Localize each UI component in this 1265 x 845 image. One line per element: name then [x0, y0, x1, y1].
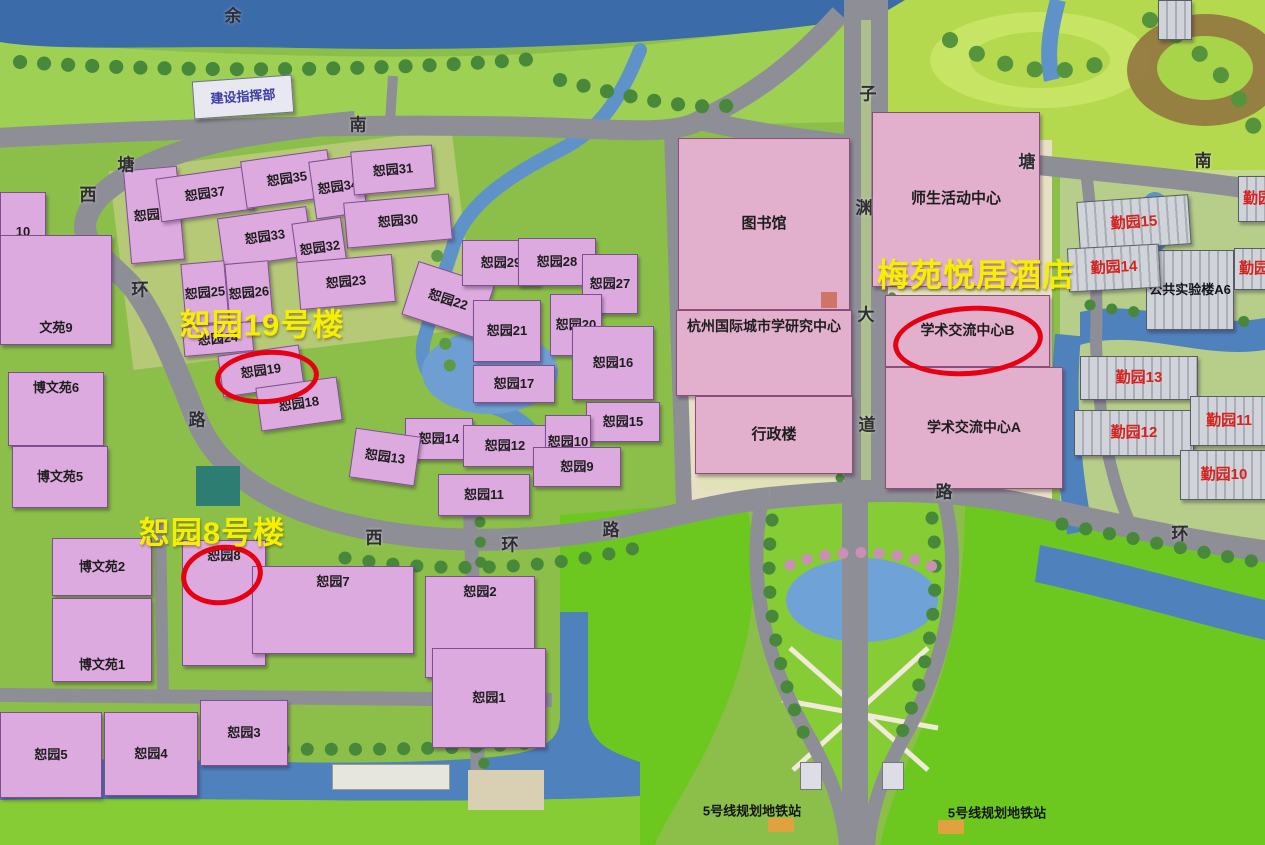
building-label: 恕园4	[134, 747, 167, 762]
river-label-yu: 余	[225, 2, 242, 27]
building-label: 恕园5	[34, 748, 67, 763]
building-label: 博文苑6	[33, 381, 79, 396]
building-label: 恕园35	[266, 169, 308, 189]
building-bowenyuan-9: 文苑9	[0, 235, 112, 345]
building-label: 恕园17	[494, 377, 534, 392]
campus-master-plan-map: 建设指挥部恕园36恕园37恕园35恕园34恕园31恕园30恕园33恕园32恕园2…	[0, 0, 1265, 845]
building-label: 恕园9	[560, 460, 593, 475]
building-academic-exchange-center-a: 学术交流中心A	[885, 367, 1063, 489]
building-label: 勤园12	[1111, 425, 1158, 442]
building-qinyuan-partial-upper: 勤园	[1238, 176, 1265, 222]
building-qinyuan-10: 勤园10	[1180, 450, 1265, 500]
building-shuyuan-4: 恕园4	[104, 712, 198, 796]
highlight-shuyuan-19-building: 恕园19号楼	[180, 300, 344, 345]
metro-marker-right	[938, 820, 964, 834]
building-bowenyuan-2: 博文苑2	[52, 538, 152, 596]
road-label-lu-southeast: 路	[936, 478, 953, 503]
building-label: 恕园12	[485, 439, 525, 454]
building-shuyuan-5: 恕园5	[0, 712, 102, 798]
building-label: 恕园22	[427, 287, 470, 313]
gate-stalls	[332, 764, 450, 790]
road-label-tang-west: 塘	[118, 151, 135, 176]
building-label: 恕园37	[184, 184, 226, 204]
road-label-xi-south: 西	[366, 524, 383, 549]
building-qinyuan-partial-lower: 勤园	[1234, 248, 1265, 290]
building-label: 恕园11	[464, 488, 504, 503]
building-label: 勤园15	[1110, 213, 1158, 233]
road-label-huan-nw: 环	[132, 276, 149, 301]
road-label-da: 大	[858, 301, 875, 326]
building-label: 勤园	[1239, 261, 1265, 278]
building-label: 恕园30	[377, 212, 419, 230]
building-shuyuan-7: 恕园7	[252, 566, 414, 654]
building-shuyuan-15: 恕园15	[586, 402, 660, 442]
bridge-southwest	[468, 770, 544, 810]
gate-booth-left	[800, 762, 822, 790]
building-label: 恕园1	[472, 691, 505, 706]
road-label-tang-east: 塘	[1019, 148, 1036, 173]
building-label: 恕园7	[316, 575, 349, 590]
road-label-nan-east: 南	[1195, 147, 1212, 172]
building-label: 恕园31	[372, 161, 414, 179]
building-label: 勤园	[1243, 191, 1265, 208]
road-label-dao: 道	[859, 411, 876, 436]
building-label: 恕园14	[419, 432, 459, 447]
building-qinyuan-15: 勤园15	[1076, 194, 1191, 252]
sports-court	[196, 466, 240, 506]
metro-station-label-right: 5号线规划地铁站	[948, 803, 1046, 822]
highlight-shuyuan-8-building: 恕园8号楼	[139, 508, 285, 553]
building-label: 勤园10	[1201, 467, 1248, 484]
building-label: 恕园32	[299, 238, 341, 258]
building-label: 文苑9	[39, 321, 72, 336]
building-label: 恕园15	[603, 415, 643, 430]
building-qinyuan-12: 勤园12	[1074, 410, 1194, 456]
building-label: 恕园21	[487, 324, 527, 339]
building-label: 恕园16	[593, 356, 633, 371]
road-label-nan-west: 南	[350, 111, 367, 136]
building-jianshe-zhihuibu: 建设指挥部	[192, 75, 294, 120]
building-small-building-topright	[1158, 0, 1192, 40]
axis-sculpture	[821, 292, 837, 308]
road-label-lu-south: 路	[603, 516, 620, 541]
road-label-xi-nw: 西	[80, 181, 97, 206]
building-shuyuan-11: 恕园11	[438, 474, 530, 516]
building-label: 学术交流中心A	[927, 420, 1021, 436]
road-label-huan-south: 环	[502, 531, 519, 556]
road-label-lu-nw: 路	[189, 406, 206, 431]
building-admin-building: 行政楼	[695, 396, 853, 474]
road-label-yuan: 渊	[856, 194, 873, 219]
metro-station-label-left: 5号线规划地铁站	[703, 801, 801, 820]
building-shuyuan-17: 恕园17	[473, 365, 555, 403]
road-label-huan-east: 环	[1172, 520, 1189, 545]
building-bowenyuan-6: 博文苑6	[8, 372, 104, 446]
building-shuyuan-3: 恕园3	[200, 700, 288, 766]
building-label: 博文苑1	[79, 658, 125, 673]
building-label: 勤园13	[1116, 370, 1163, 387]
highlight-meiyuan-yueju-hotel: 梅苑悦居酒店	[877, 250, 1075, 296]
road-label-zi: 子	[860, 80, 877, 105]
building-label: 博文苑5	[37, 470, 83, 485]
building-label: 恕园23	[325, 273, 367, 291]
building-shuyuan-21: 恕园21	[473, 300, 541, 362]
building-shuyuan-16: 恕园16	[572, 326, 654, 400]
building-label: 恕园28	[537, 255, 577, 270]
building-qinyuan-14: 勤园14	[1067, 244, 1161, 293]
building-bowenyuan-5: 博文苑5	[12, 446, 108, 508]
building-shuyuan-31: 恕园31	[350, 145, 436, 196]
building-qinyuan-11: 勤园11	[1190, 396, 1265, 446]
building-library: 图书馆	[678, 138, 850, 310]
building-label: 恕园27	[590, 277, 630, 292]
building-bowenyuan-1: 博文苑1	[52, 598, 152, 682]
building-label: 博文苑2	[79, 560, 125, 575]
building-shuyuan-1: 恕园1	[432, 648, 546, 748]
map-entities: 建设指挥部恕园36恕园37恕园35恕园34恕园31恕园30恕园33恕园32恕园2…	[0, 0, 1265, 845]
building-label: 师生活动中心	[911, 191, 1001, 208]
building-label: 恕园29	[481, 256, 521, 271]
building-label: 行政楼	[751, 427, 796, 444]
building-qinyuan-13: 勤园13	[1080, 356, 1198, 400]
metro-marker-left	[768, 818, 794, 832]
building-shuyuan-30: 恕园30	[343, 193, 453, 248]
building-hangzhou-urban-studies-center: 杭州国际城市学研究中心	[676, 310, 852, 396]
building-label: 勤园14	[1090, 258, 1138, 277]
building-label: 恕园2	[463, 585, 496, 600]
building-label: 恕园13	[364, 447, 406, 467]
building-label: 建设指挥部	[210, 87, 276, 106]
building-shuyuan-13: 恕园13	[349, 428, 421, 487]
building-shuyuan-9: 恕园9	[533, 447, 621, 487]
building-label: 恕园3	[227, 726, 260, 741]
building-label: 杭州国际城市学研究中心	[687, 319, 841, 335]
building-label: 恕园33	[244, 227, 286, 247]
gate-booth-right	[882, 762, 904, 790]
building-label: 公共实验楼A6	[1149, 283, 1231, 298]
building-label: 图书馆	[741, 216, 786, 233]
building-label: 勤园11	[1206, 413, 1252, 430]
